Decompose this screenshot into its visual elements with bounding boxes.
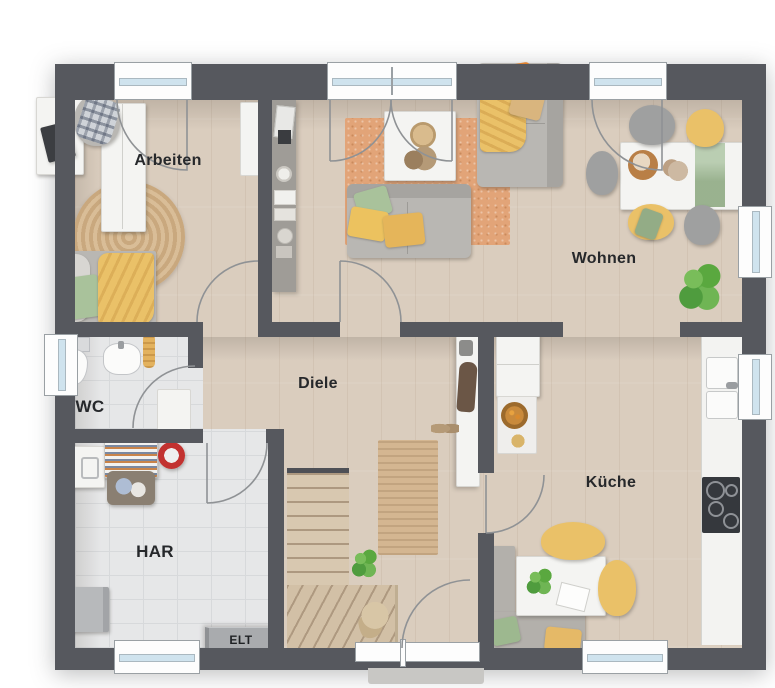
wall-diele-wohnen-right (400, 322, 563, 337)
room-label-wohnen: Wohnen (572, 250, 637, 268)
room-label-diele: Diele (298, 375, 338, 393)
yellow-towel (143, 334, 155, 368)
dried-branch (508, 428, 528, 454)
wall-cabinet-arbeiten (240, 102, 260, 176)
wall-arbeiten-wohnen (258, 100, 272, 337)
wall-wc-right (188, 322, 203, 368)
window-kueche-bottom (582, 640, 668, 674)
books-stack-2 (274, 208, 296, 221)
basin-faucet (118, 341, 124, 349)
hanging-jacket (456, 361, 477, 412)
decor-plate (276, 166, 292, 182)
sink-basin-2 (706, 391, 738, 419)
fern-plant (676, 258, 726, 318)
room-label-wc: WC (76, 397, 105, 417)
door-handle (400, 639, 406, 667)
laundry-basket (107, 471, 155, 505)
terrace-door-arbeiten (114, 62, 192, 100)
table-runner (695, 143, 725, 207)
dark-frame (278, 130, 291, 144)
dining-chair-gray-left (586, 151, 618, 195)
dining-chair-gray-top (629, 105, 675, 145)
yellow-pillow-sofa-2 (382, 212, 425, 248)
hallway-runner-rug (378, 440, 438, 555)
books-stack-1 (274, 190, 296, 205)
decor-round (277, 228, 293, 244)
yellow-throw (98, 253, 154, 325)
wall-arbeiten-bottom (75, 322, 197, 337)
window-kueche-right (738, 354, 772, 420)
wall-diele-wohnen-left (258, 322, 340, 337)
wc-cabinet (157, 389, 191, 431)
fruit-bowl-kitchen (501, 402, 528, 429)
kitchen-chair-right (598, 560, 636, 616)
french-door-wohnen (327, 62, 457, 100)
wall-diele-kueche-upper (478, 337, 494, 473)
wall-wc-har-divider (75, 429, 203, 443)
books-stack-3 (276, 246, 292, 258)
wall-har-right (268, 429, 284, 648)
window-wohnen-right (738, 206, 772, 278)
sink-faucet (726, 382, 738, 389)
floor-plan: ELT (0, 0, 775, 688)
cooktop (702, 477, 740, 533)
red-bucket (158, 442, 185, 469)
window-har-bottom (114, 640, 200, 674)
room-label-har: HAR (136, 542, 174, 562)
terrace-door-wohnen-right (589, 62, 667, 100)
table-plant (524, 566, 556, 598)
fridge (496, 333, 540, 397)
dried-bouquet (662, 156, 694, 186)
dining-chair-yellow-top (686, 109, 724, 147)
entrance-door (355, 642, 480, 662)
shoes (431, 420, 459, 437)
entrance-landing (368, 668, 484, 684)
shadow-diele (203, 337, 478, 361)
wall-diele-kueche-lower (478, 533, 494, 648)
hanging-bag (459, 340, 473, 356)
wall-har-door-pier (266, 429, 284, 443)
wardrobe-seam (122, 104, 123, 229)
window-wc-left (44, 334, 78, 396)
dining-chair-gray-bottom (684, 205, 720, 245)
elt-label: ELT (229, 633, 252, 647)
stair-plant (350, 546, 380, 582)
room-label-arbeiten: Arbeiten (134, 152, 201, 170)
staircase-upper-flight (287, 468, 349, 603)
fruit-bowl-dining (628, 150, 658, 180)
dried-plant-decor (396, 144, 440, 176)
wall-wohnen-kueche-stub (680, 322, 742, 337)
pampas-grass-2 (358, 592, 392, 644)
kitchen-chair-top (541, 522, 605, 560)
room-label-kueche: Küche (586, 474, 636, 492)
